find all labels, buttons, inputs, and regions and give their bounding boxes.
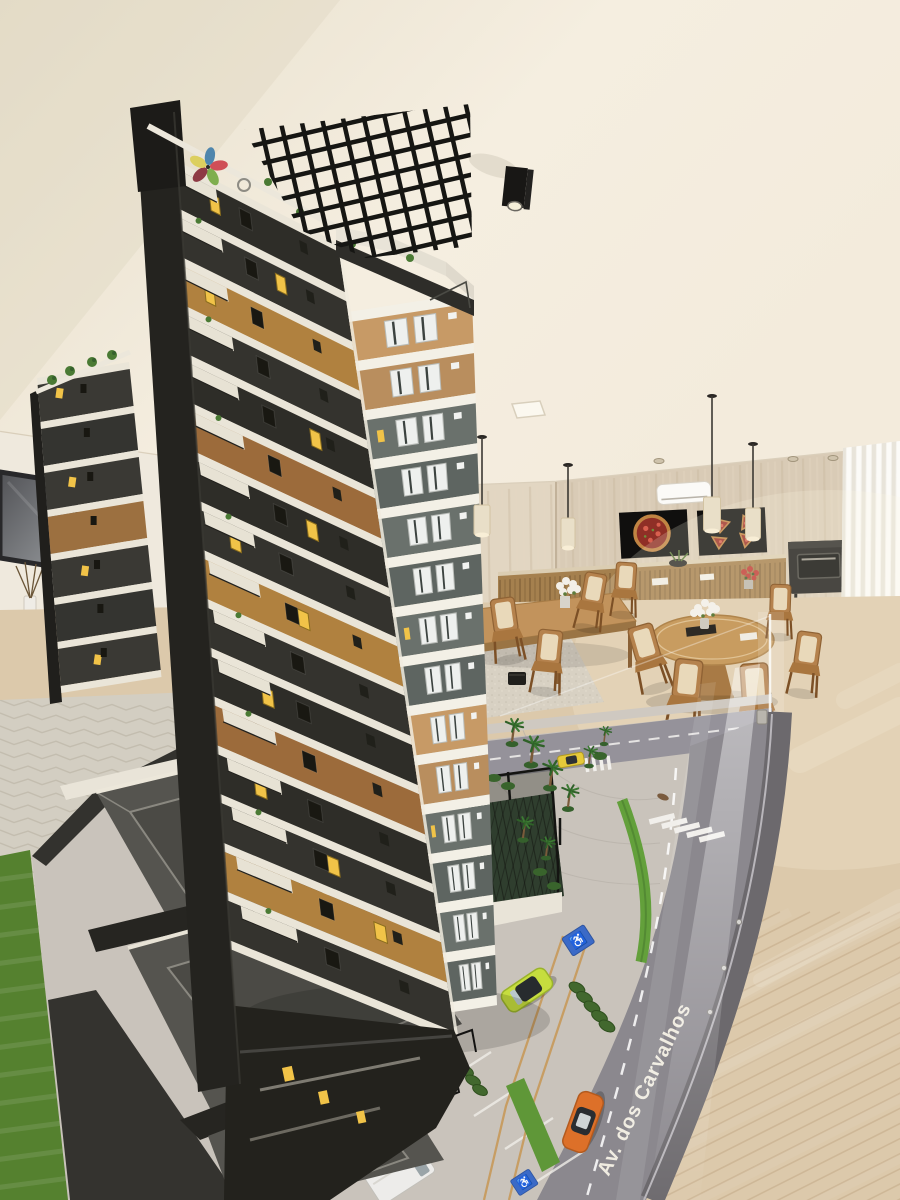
tower-window (474, 762, 479, 769)
roof-terrace-plant (65, 366, 75, 376)
pendant-glow (562, 546, 574, 551)
tower-window (462, 562, 469, 569)
acrylic-corner-glow (758, 612, 784, 712)
tower-window (459, 512, 466, 519)
acrylic-clamp (757, 710, 767, 724)
bush (501, 782, 515, 790)
balcony-plant (206, 316, 212, 322)
bush (547, 882, 561, 890)
tower-window (485, 962, 489, 969)
fascia-bolt (736, 919, 741, 924)
tower-window (483, 912, 487, 919)
balcony-plant (235, 612, 241, 618)
roof-terrace-plant (406, 254, 414, 262)
roof-terrace-plant (87, 357, 97, 367)
tower-window (418, 363, 441, 392)
tower-window (431, 513, 451, 542)
pendant-shade (474, 505, 490, 535)
tower-window (454, 412, 462, 420)
tower-window (414, 313, 438, 343)
bush (533, 868, 547, 876)
led-panel-light (512, 401, 545, 418)
tower-window (471, 712, 477, 719)
pendant-shade (704, 497, 721, 531)
floor-outlet-box (508, 672, 526, 685)
bush (487, 774, 501, 782)
tower-window (468, 662, 474, 669)
tower-window (436, 563, 455, 592)
balcony-plant (196, 218, 202, 224)
tower-window (477, 812, 482, 819)
pendant-glow (705, 529, 720, 534)
balcony-plant (265, 908, 271, 914)
pendant-shade (746, 508, 761, 539)
tower-window (427, 463, 448, 492)
pendant-glow (475, 533, 489, 538)
tower-window (422, 413, 444, 442)
balcony-plant (225, 514, 231, 520)
tower-window (448, 312, 457, 320)
tower-window (480, 862, 485, 869)
roof-terrace-plant (107, 350, 117, 360)
balcony-plant (255, 809, 261, 815)
balcony-plant (216, 415, 222, 421)
tower-window (451, 362, 459, 370)
roof-terrace-plant (264, 178, 272, 186)
pendant-glow (747, 537, 760, 542)
ceiling-spotlight (501, 166, 533, 212)
roof-terrace-plant (47, 375, 57, 385)
balcony-plant (245, 711, 251, 717)
photo-canvas: ♿♿Av. dos Carvalhos (0, 0, 900, 1200)
tower-window (457, 462, 465, 470)
bush (593, 752, 607, 760)
showroom-photo: ♿♿Av. dos Carvalhos (0, 0, 900, 1200)
tower-window (465, 612, 472, 619)
pendant-shade (561, 518, 575, 548)
